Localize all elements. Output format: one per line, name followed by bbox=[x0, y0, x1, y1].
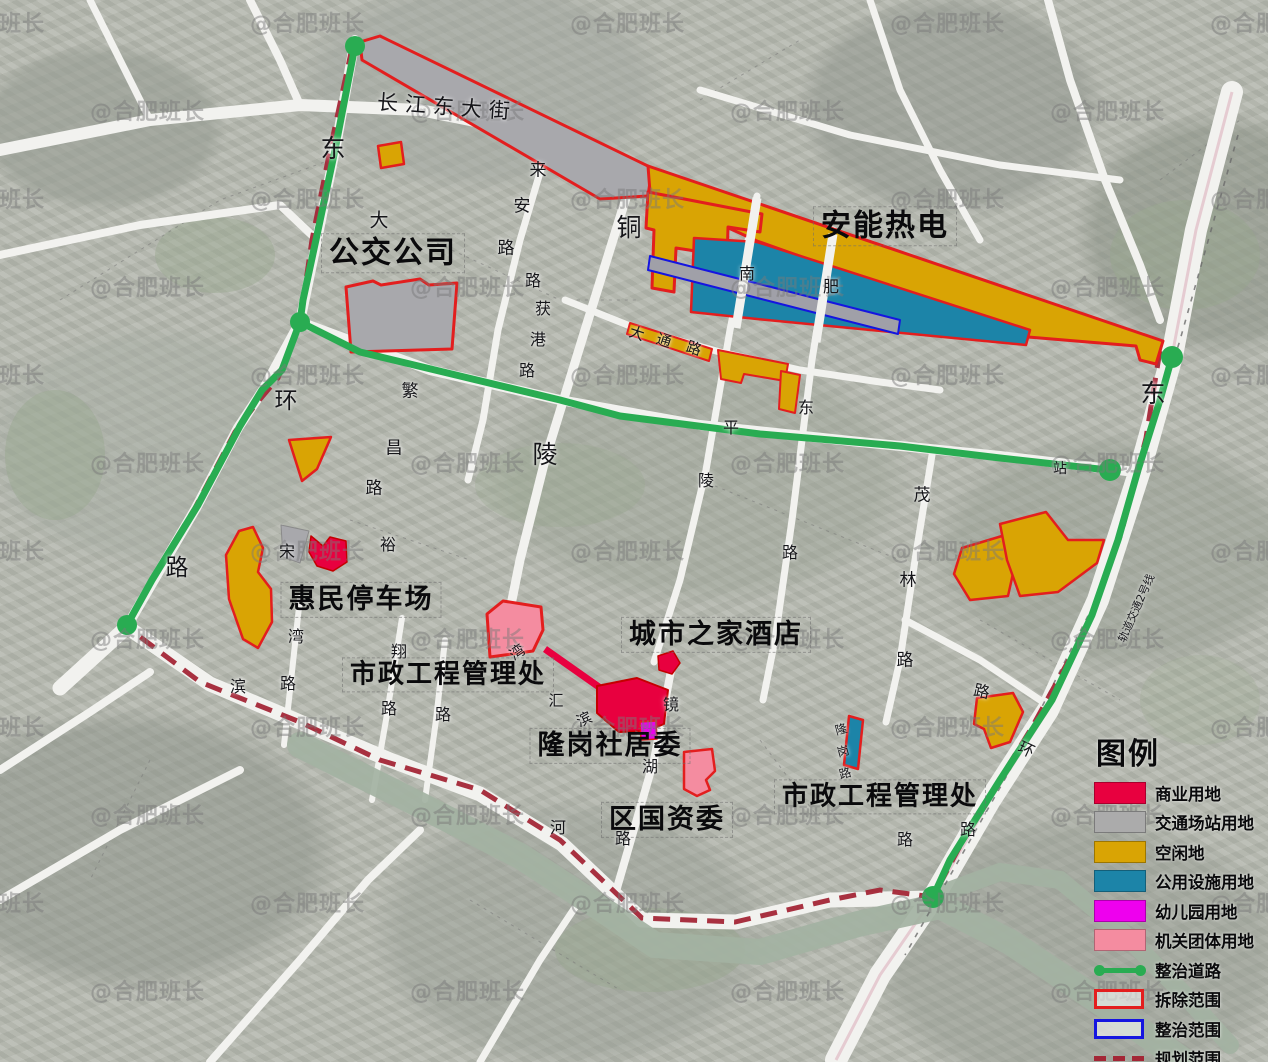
zone-parking-red bbox=[309, 536, 347, 571]
legend-item-5: 机关团体用地 bbox=[1094, 926, 1268, 956]
zone-orange-east-b bbox=[1000, 512, 1104, 596]
legend-swatch-line-icon bbox=[1094, 960, 1146, 980]
legend-label: 整治范围 bbox=[1155, 1017, 1221, 1041]
zone-red-commercial bbox=[597, 678, 668, 732]
legend-item-7: 拆除范围 bbox=[1094, 985, 1268, 1015]
zone-orange-l2 bbox=[779, 371, 800, 413]
legend-swatch-fill-icon bbox=[1094, 811, 1146, 833]
zone-blue-parallelogram bbox=[844, 716, 863, 769]
legend-label: 公用设施用地 bbox=[1155, 869, 1254, 893]
legend-item-1: 交通场站用地 bbox=[1094, 808, 1268, 838]
zone-parking-orange-blob bbox=[226, 527, 272, 648]
legend-swatch-fill-icon bbox=[1094, 841, 1146, 863]
legend-item-2: 空闲地 bbox=[1094, 837, 1268, 867]
legend-label: 整治道路 bbox=[1155, 958, 1221, 982]
legend-swatch-outline-icon bbox=[1094, 1019, 1146, 1039]
legend-label: 空闲地 bbox=[1155, 840, 1205, 864]
legend-item-3: 公用设施用地 bbox=[1094, 867, 1268, 897]
legend-label: 商业用地 bbox=[1155, 781, 1221, 805]
legend-item-4: 幼儿园用地 bbox=[1094, 896, 1268, 926]
legend-swatch-fill-icon bbox=[1094, 782, 1146, 804]
river bbox=[300, 745, 1230, 1062]
legend-swatch-outline-icon bbox=[1094, 989, 1146, 1009]
legend-item-0: 商业用地 bbox=[1094, 778, 1268, 808]
zone-orange-datong-band bbox=[627, 323, 712, 361]
zone-orange-triangle bbox=[289, 437, 331, 481]
map-vector-layer bbox=[0, 0, 1268, 1062]
zone-orange-l1 bbox=[718, 350, 788, 383]
legend-swatch-fill-icon bbox=[1094, 870, 1146, 892]
legend-label: 交通场站用地 bbox=[1155, 810, 1254, 834]
legend-swatch-fill-icon bbox=[1094, 900, 1146, 922]
zones-layer bbox=[226, 36, 1163, 796]
legend-title: 图例 bbox=[1096, 729, 1268, 773]
legend-swatch-dash-icon bbox=[1094, 1056, 1146, 1061]
urban-renewal-planning-map: @合肥班长@合肥班长@合肥班长@合肥班长@合肥班长@合肥班长@合肥班长@合肥班长… bbox=[0, 0, 1268, 1062]
zone-orange-right-small bbox=[974, 693, 1023, 748]
zone-parking-gray bbox=[281, 525, 309, 563]
zone-corridor-demolition bbox=[360, 36, 652, 199]
zone-pink-sasac bbox=[684, 749, 715, 796]
zone-red-small bbox=[658, 651, 680, 674]
zone-orange-small-topleft bbox=[378, 142, 404, 168]
legend-item-8: 整治范围 bbox=[1094, 1014, 1268, 1044]
legend-items: 商业用地交通场站用地空闲地公用设施用地幼儿园用地机关团体用地整治道路拆除范围整治… bbox=[1094, 778, 1268, 1062]
legend: 图例 商业用地交通场站用地空闲地公用设施用地幼儿园用地机关团体用地整治道路拆除范… bbox=[1094, 729, 1268, 1062]
legend-label: 幼儿园用地 bbox=[1155, 899, 1238, 923]
legend-item-9: 规划范围 bbox=[1094, 1044, 1268, 1062]
legend-item-6: 整治道路 bbox=[1094, 955, 1268, 985]
legend-label: 规划范围 bbox=[1155, 1046, 1221, 1062]
zone-bus-company bbox=[346, 279, 457, 352]
legend-label: 机关团体用地 bbox=[1155, 928, 1254, 952]
zone-pink-hotel bbox=[487, 601, 543, 657]
zone-red-connector bbox=[545, 649, 599, 687]
legend-swatch-fill-icon bbox=[1094, 929, 1146, 951]
legend-label: 拆除范围 bbox=[1155, 987, 1221, 1011]
zone-magenta-kindergarten bbox=[640, 721, 657, 740]
